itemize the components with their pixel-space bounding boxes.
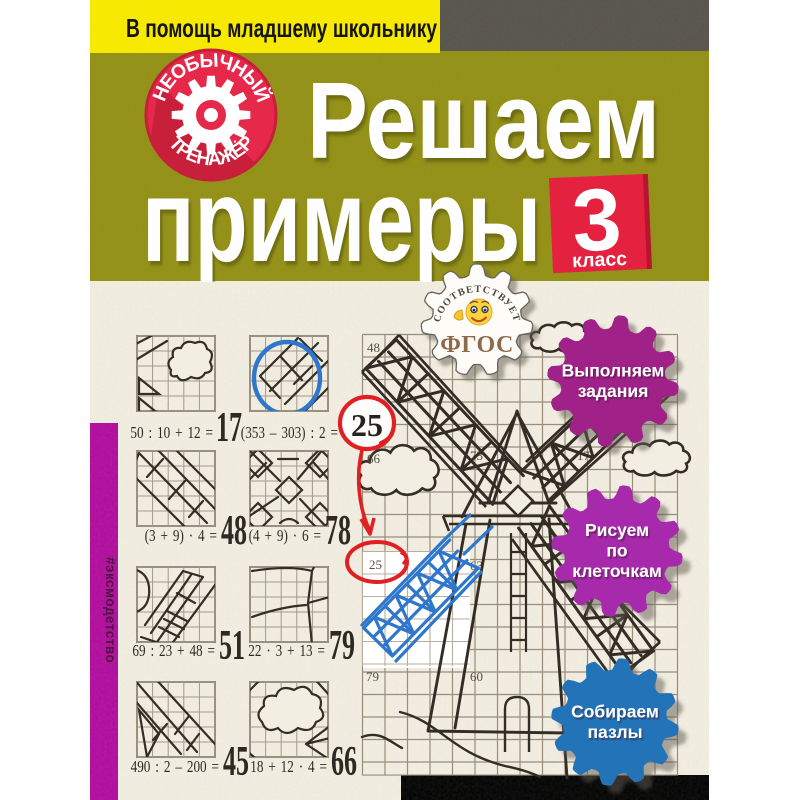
svg-text:79: 79 — [366, 669, 379, 684]
svg-text:79: 79 — [329, 622, 355, 669]
svg-text:48: 48 — [367, 340, 380, 355]
svg-text:490 : 2 – 200 =: 490 : 2 – 200 = — [131, 759, 219, 777]
svg-text:(3 + 9) · 4 =: (3 + 9) · 4 = — [145, 528, 217, 546]
svg-text:51: 51 — [219, 622, 245, 669]
svg-text:(353 – 303) : 2 =: (353 – 303) : 2 = — [241, 425, 338, 443]
svg-text:(4 + 9) · 6 =: (4 + 9) · 6 = — [249, 528, 321, 546]
svg-text:25: 25 — [369, 557, 382, 572]
svg-text:66: 66 — [331, 738, 357, 785]
svg-text:50 : 10 + 12 =: 50 : 10 + 12 = — [130, 425, 213, 443]
svg-text:66: 66 — [367, 451, 381, 466]
svg-text:25: 25 — [351, 407, 383, 443]
svg-text:18 + 12 · 4 =: 18 + 12 · 4 = — [250, 759, 327, 777]
svg-text:45: 45 — [223, 738, 249, 785]
svg-text:класс: класс — [572, 248, 628, 272]
svg-text:69 : 23 + 48 =: 69 : 23 + 48 = — [132, 643, 215, 661]
svg-text:17: 17 — [216, 404, 242, 451]
svg-text:78: 78 — [325, 507, 351, 554]
svg-text:48: 48 — [221, 507, 247, 554]
svg-text:60: 60 — [470, 669, 483, 684]
svg-text:22 · 3 + 13 =: 22 · 3 + 13 = — [248, 643, 325, 661]
svg-text:ФГОС: ФГОС — [440, 332, 514, 358]
